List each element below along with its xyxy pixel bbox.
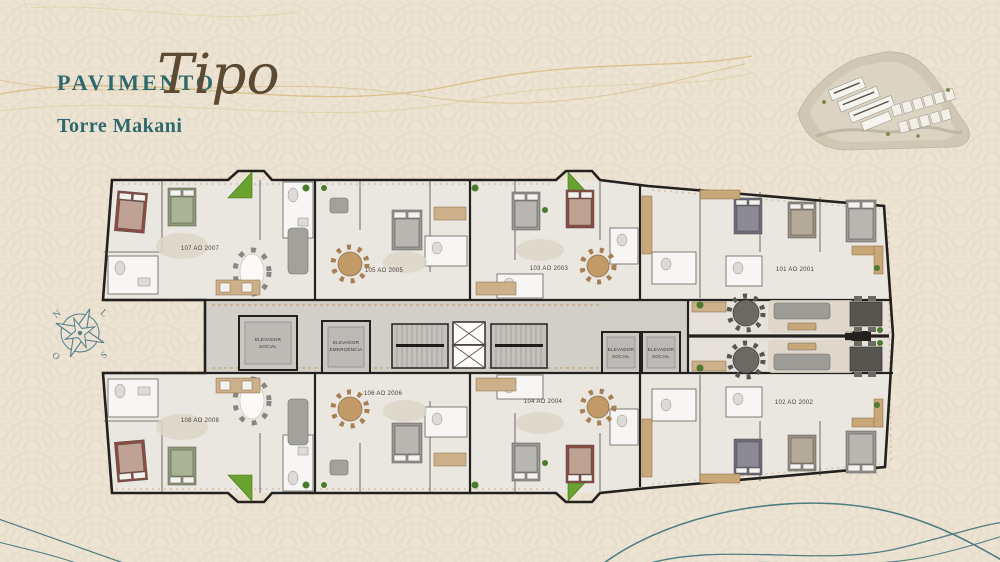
unit-101-label: 101 AO 2001	[776, 267, 815, 273]
elevator-social-left-line1: ELEVADOR	[255, 337, 282, 342]
elevator-emergency-line2: EMERGÊNCIA	[330, 345, 364, 352]
elevator-social-right1-line1: ELEVADOR	[608, 347, 635, 352]
floor-plan: 107 AO 2007 105 AO 2005 103 AO 2003 101 …	[103, 171, 893, 502]
elevator-social-left-line2: SOCIAL	[259, 344, 277, 349]
unit-108-label: 108 AO 2008	[181, 418, 220, 424]
elevator-core-right	[602, 332, 680, 373]
elevator-emergency-line1: ELEVADOR	[333, 340, 360, 345]
unit-102-label: 102 AO 2002	[775, 400, 814, 406]
unit-107-label: 107 AO 2007	[181, 246, 220, 252]
unit-106-label: 106 AO 2006	[364, 391, 403, 397]
unit-104-label: 104 AO 2004	[524, 399, 563, 405]
page-subtitle: Torre Makani	[57, 115, 182, 138]
poster-canvas: N L S O	[0, 0, 1000, 562]
unit-103-label: 103 AO 2003	[530, 266, 569, 272]
elevator-social-right1-line2: SOCIAL	[612, 354, 630, 359]
page-title-script: Tipo	[157, 42, 280, 106]
elevator-social-right2-line1: ELEVADOR	[648, 347, 675, 352]
unit-105-label: 105 AO 2005	[365, 268, 404, 274]
elevator-shafts	[453, 322, 485, 368]
elevator-social-right2-line2: SOCIAL	[652, 354, 670, 359]
